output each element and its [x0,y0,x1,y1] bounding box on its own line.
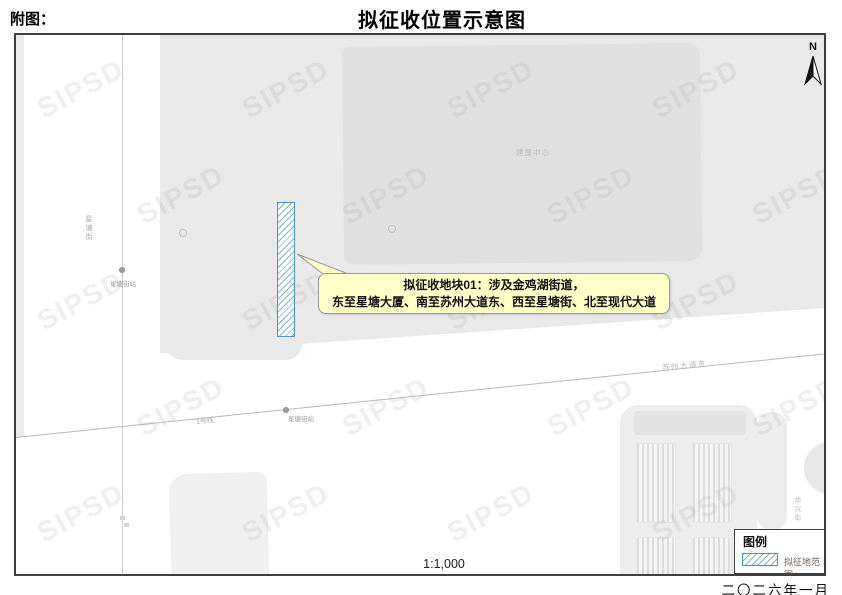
road-label-east: 华兴街 [791,497,801,523]
watermark-text: SIPSD [747,159,826,231]
watermark-text: SIPSD [237,477,335,549]
watermark-text: SIPSD [132,371,230,443]
callout-line-2: 东至星塘大厦、南至苏州大道东、西至星塘街、北至现代大道 [319,294,669,310]
page: 附图： 拟征收位置示意图 SIPSDSIPSDSIPSDSIPSDSIPSDSI… [0,0,842,595]
page-title: 拟征收位置示意图 [0,4,842,33]
map-frame: SIPSDSIPSDSIPSDSIPSDSIPSDSIPSDSIPSDSIPSD… [14,33,826,576]
metro-line-label: 1号线 [196,415,215,427]
poi-circle-marker [179,229,187,237]
legend-title: 图例 [743,533,767,550]
watermark-text: SIPSD [647,477,745,549]
watermark-text: SIPSD [32,477,130,549]
watermark-text: SIPSD [442,477,540,549]
watermark-text: SIPSD [337,371,435,443]
watermark-text: SIPSD [747,371,826,443]
legend-hatch-swatch [742,553,778,566]
map-mark [124,523,129,527]
map-scale: 1:1,000 [404,557,484,571]
building-label-north: 建屋中心 [516,147,586,158]
watermark-text: SIPSD [337,159,435,231]
watermark-text: SIPSD [442,53,540,125]
callout-annotation: 拟征收地块01：涉及金鸡湖街道， 东至星塘大厦、南至苏州大道东、西至星塘街、北至… [318,273,670,314]
map-mark [120,516,125,520]
station-label-2: 星塘街站 [271,413,331,423]
date-label: 二〇二六年一月 [690,579,830,595]
station-label-1: 星塘街站 [93,278,153,288]
acquisition-site-hatched-area [277,202,295,337]
watermark-text: SIPSD [32,53,130,125]
metro-station-icon [119,267,125,273]
watermark-text: SIPSD [132,159,230,231]
watermark-text: SIPSD [32,265,130,337]
legend: 图例 拟征地范围 [734,529,826,574]
watermark-text: SIPSD [647,53,745,125]
watermark-text: SIPSD [237,53,335,125]
poi-circle-marker [388,225,396,233]
legend-item-label: 拟征地范围 [784,555,826,576]
north-arrow-icon [802,55,824,87]
watermark-text: SIPSD [542,159,640,231]
road-label-xingtang-street: 星塘街 [83,215,93,242]
north-label: N [797,41,826,53]
road-centerline-vertical [122,35,123,574]
callout-line-1: 拟征收地块01：涉及金鸡湖街道， [319,277,669,293]
